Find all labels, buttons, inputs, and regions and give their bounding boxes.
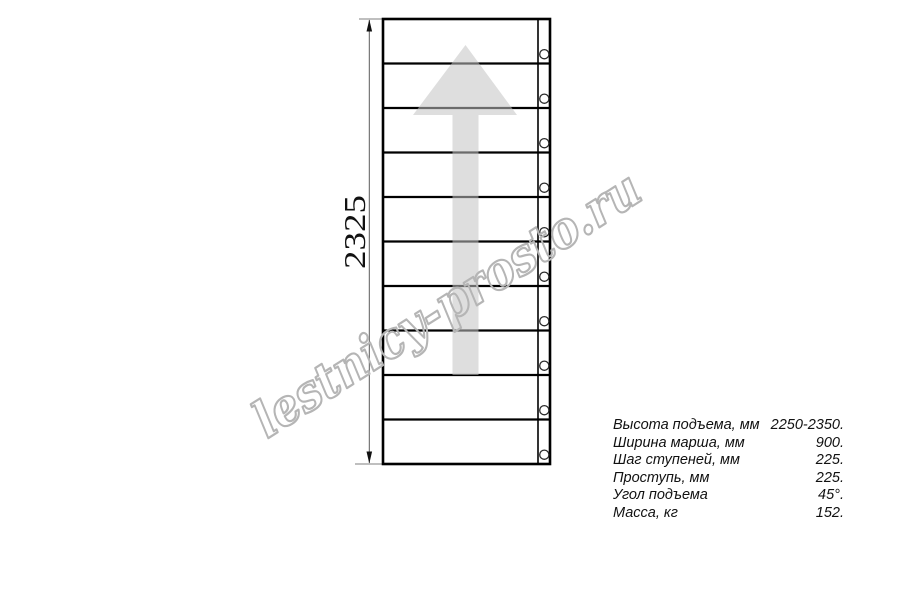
spec-label: Проступь, мм [613,470,709,488]
spec-label: Шаг ступеней, мм [613,452,740,470]
spec-row-height: Высота подъема, мм 2250-2350. [613,417,844,435]
fastener-circle [540,317,549,326]
spec-value: 45°. [810,487,844,505]
spec-row-step: Шаг ступеней, мм 225. [613,452,844,470]
fastener-circle [540,450,549,459]
spec-value: 225. [808,452,844,470]
fastener-circle [540,94,549,103]
spec-label: Угол подъема [613,487,708,505]
spec-label: Высота подъема, мм [613,417,760,435]
dimension-arrowhead-down [367,452,373,464]
spec-row-angle: Угол подъема 45°. [613,487,844,505]
fastener-circle [540,361,549,370]
spec-label: Масса, кг [613,505,678,523]
spec-row-tread: Проступь, мм 225. [613,470,844,488]
spec-row-width: Ширина марша, мм 900. [613,435,844,453]
fastener-circle [540,183,549,192]
fastener-circle [540,139,549,148]
spec-value: 900. [808,435,844,453]
spec-value: 152. [808,505,844,523]
dimension-label: 2325 [337,195,372,269]
spec-value: 2250-2350. [763,417,844,435]
staircase-drawing-page: 2325 lestnicy-prosto.ru Высота подъема, … [0,0,900,600]
spec-label: Ширина марша, мм [613,435,745,453]
spec-table: Высота подъема, мм 2250-2350. Ширина мар… [613,417,844,523]
fastener-circle [540,406,549,415]
watermark-text: lestnicy-prosto.ru [242,159,652,449]
dimension-arrowhead-up [367,20,373,32]
fastener-circle [540,50,549,59]
spec-value: 225. [808,470,844,488]
spec-row-mass: Масса, кг 152. [613,505,844,523]
